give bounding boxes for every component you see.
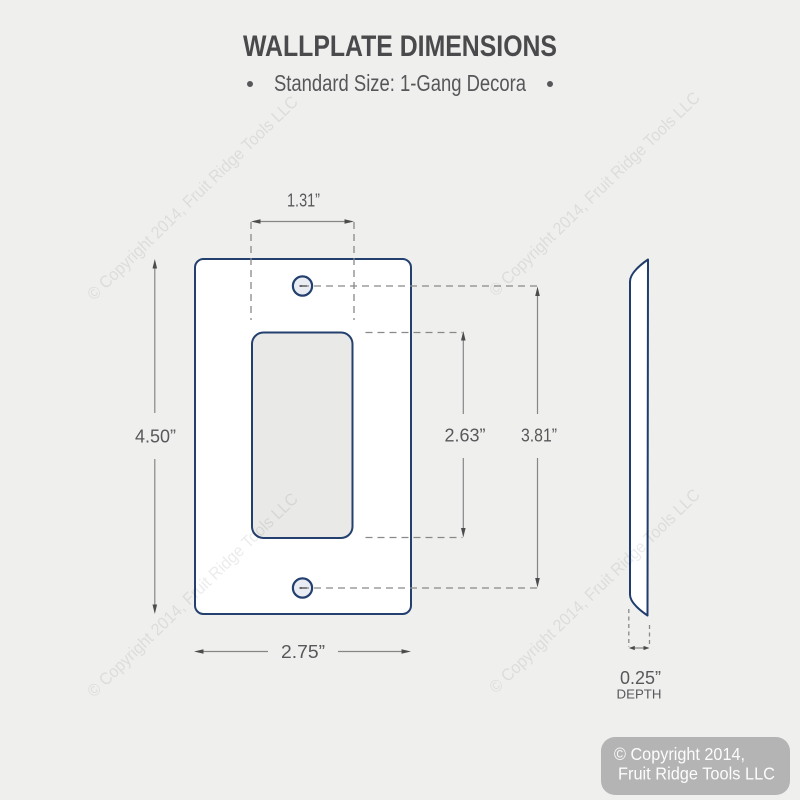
svg-text:WALLPLATE DIMENSIONS: WALLPLATE DIMENSIONS [243, 30, 557, 63]
svg-text:DEPTH: DEPTH [617, 687, 662, 702]
svg-text:2.63”: 2.63” [445, 426, 486, 446]
svg-text:Fruit Ridge Tools LLC: Fruit Ridge Tools LLC [618, 764, 775, 784]
svg-text:Standard Size: 1-Gang Decora: Standard Size: 1-Gang Decora [274, 70, 526, 96]
svg-text:3.81”: 3.81” [521, 426, 557, 446]
svg-text:1.31”: 1.31” [287, 191, 320, 211]
svg-text:4.50”: 4.50” [135, 427, 176, 447]
svg-text:2.75”: 2.75” [281, 642, 325, 662]
svg-text:0.25”: 0.25” [620, 668, 661, 688]
svg-text:© Copyright 2014,: © Copyright 2014, [614, 744, 745, 764]
